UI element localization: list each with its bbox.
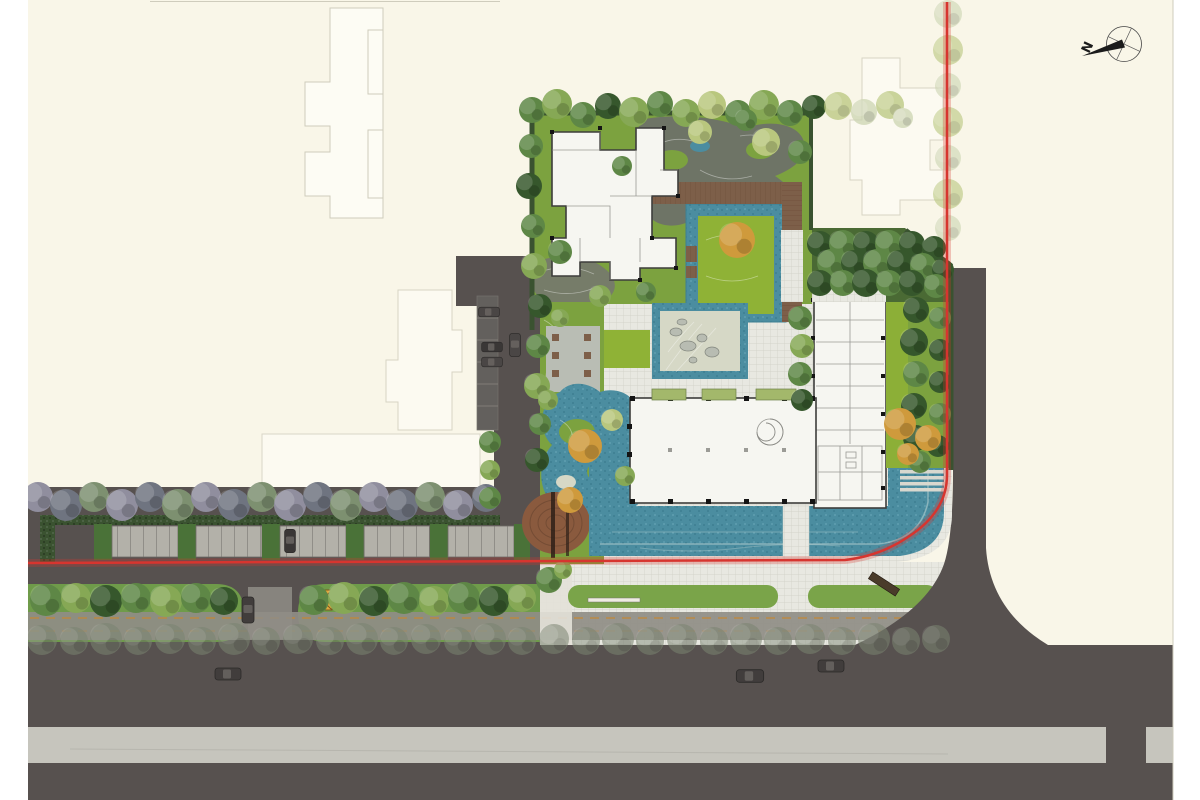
parking-stalls (94, 524, 530, 560)
small-lawn-west (600, 330, 650, 368)
left-margin (0, 0, 28, 800)
pond-beach (556, 475, 576, 489)
island-bench (588, 598, 640, 602)
main-road (28, 645, 1173, 800)
road-median-band (28, 727, 1173, 763)
pool-dock (686, 266, 697, 278)
parking-hedge-strip (40, 515, 500, 525)
tree-row-south-faded (27, 623, 950, 655)
pool-dock (686, 246, 697, 262)
lawn-island-east1 (568, 585, 778, 608)
median-band-gap (1106, 727, 1146, 763)
water-bridge-walk (783, 506, 809, 558)
right-margin (1173, 0, 1200, 800)
roof-planters (652, 389, 796, 400)
site-master-plan: N (0, 0, 1200, 800)
deck-trellis-bar (551, 492, 555, 558)
garden-path-vertical (781, 230, 803, 302)
main-hall (630, 398, 816, 503)
